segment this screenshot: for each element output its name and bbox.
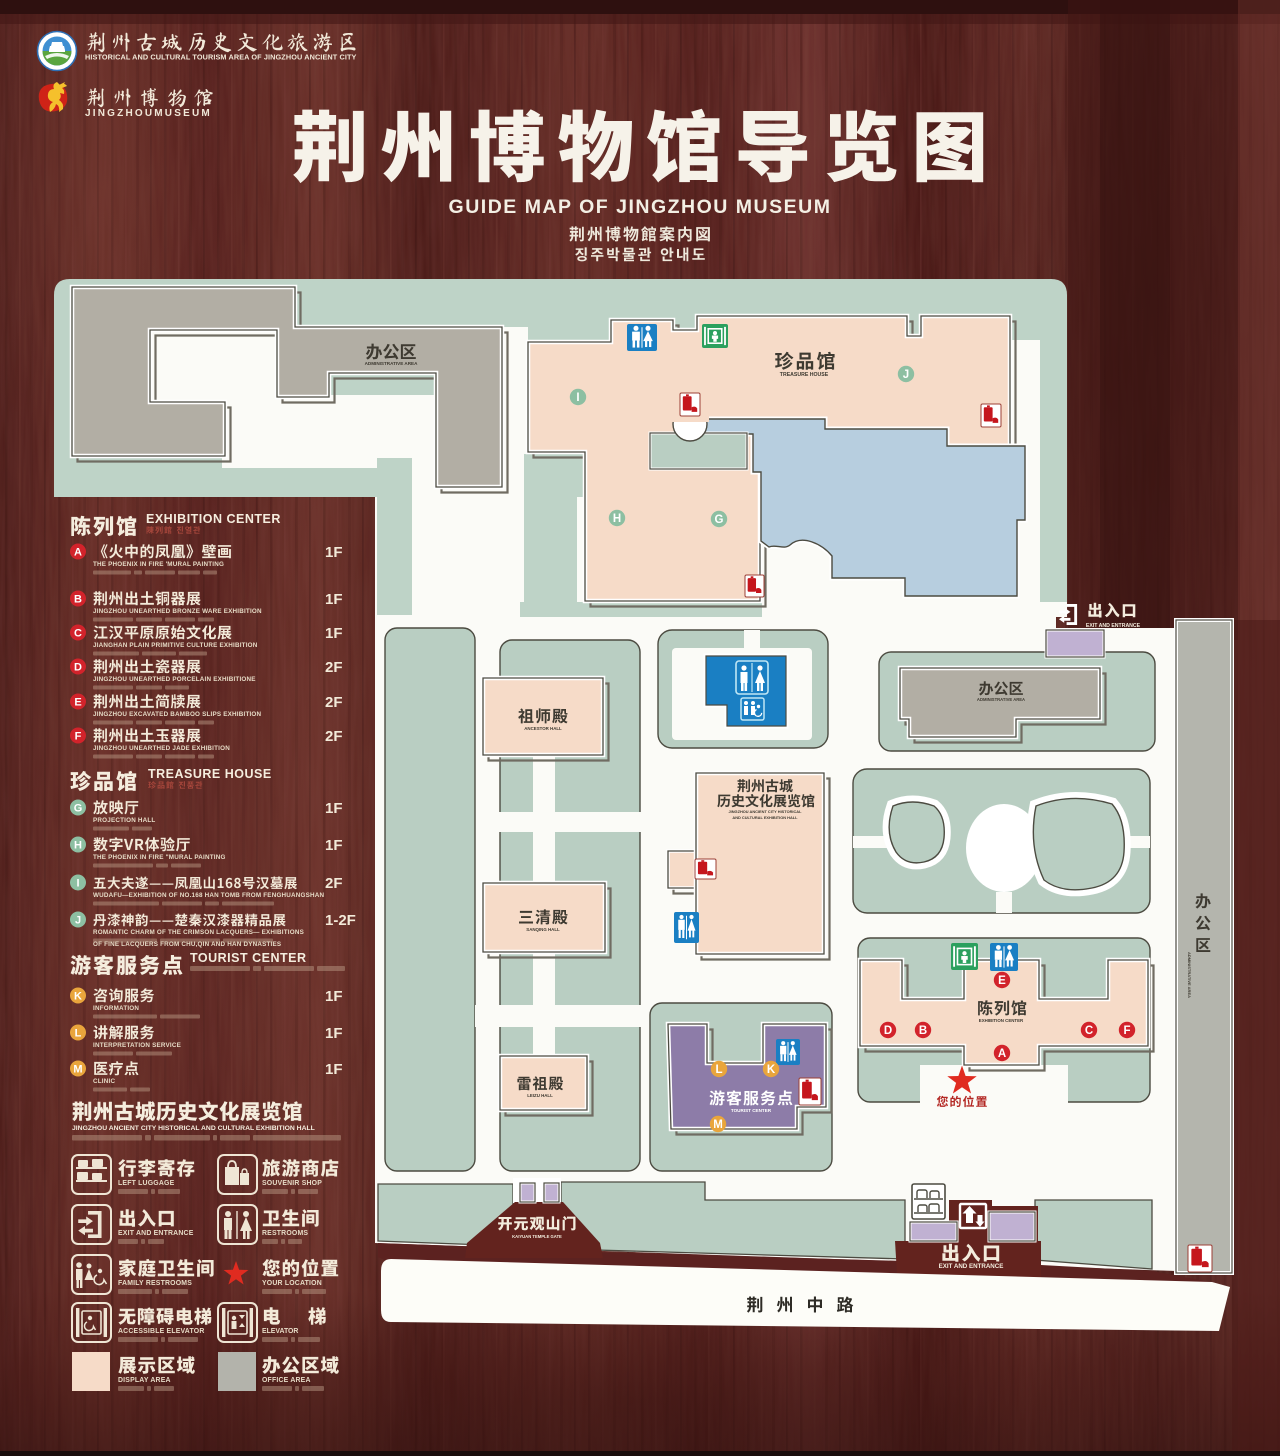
svg-text:1F: 1F xyxy=(325,591,343,608)
svg-text:EXIT AND ENTRANCE: EXIT AND ENTRANCE xyxy=(939,1263,1004,1270)
svg-text:B: B xyxy=(74,593,82,605)
svg-text:1F: 1F xyxy=(325,625,343,642)
svg-text:J: J xyxy=(903,369,909,381)
svg-text:JINGZHOU EXCAVATED BAMBOO SLIP: JINGZHOU EXCAVATED BAMBOO SLIPS EXHIBITI… xyxy=(93,711,262,718)
svg-text:F: F xyxy=(75,730,82,742)
svg-text:ADMINISTRATIVE AREA: ADMINISTRATIVE AREA xyxy=(365,361,419,366)
svg-text:M: M xyxy=(713,1119,723,1131)
svg-text:1F: 1F xyxy=(325,837,343,854)
svg-text:LEIZU HALL: LEIZU HALL xyxy=(527,1093,553,1098)
svg-text:1-2F: 1-2F xyxy=(325,912,356,929)
svg-text:ROMANTIC CHARM OF THE CRIMSON: ROMANTIC CHARM OF THE CRIMSON LACQUERS— … xyxy=(93,929,304,936)
svg-text:THE PHOENIX IN FIRE 'MURAL PAI: THE PHOENIX IN FIRE 'MURAL PAINTING xyxy=(93,561,224,568)
svg-text:ANCESTOR HALL: ANCESTOR HALL xyxy=(524,726,562,731)
svg-text:SOUVENIR SHOP: SOUVENIR SHOP xyxy=(262,1180,322,1187)
svg-text:KAIYUAN TEMPLE GATE: KAIYUAN TEMPLE GATE xyxy=(512,1234,562,1239)
svg-text:2F: 2F xyxy=(325,694,343,711)
svg-text:CLINIC: CLINIC xyxy=(93,1078,115,1085)
svg-text:DISPLAY AREA: DISPLAY AREA xyxy=(118,1377,171,1384)
svg-text:ACCESSIBLE ELEVATOR: ACCESSIBLE ELEVATOR xyxy=(118,1328,205,1335)
svg-text:OF FINE LACQUERS FROM CHU,QIN: OF FINE LACQUERS FROM CHU,QIN AND HAN DY… xyxy=(93,941,281,948)
svg-text:TOURIST CENTER: TOURIST CENTER xyxy=(190,951,307,965)
svg-text:JINGZHOU ANCIENT CITY HISTORIC: JINGZHOU ANCIENT CITY HISTORICAL xyxy=(729,809,803,814)
svg-text:L: L xyxy=(75,1027,82,1039)
svg-text:OFFICE AREA: OFFICE AREA xyxy=(262,1377,311,1384)
svg-text:H: H xyxy=(613,513,621,525)
svg-text:D: D xyxy=(884,1025,892,1037)
svg-text:C: C xyxy=(74,627,82,639)
svg-text:INTERPRETATION SERVICE: INTERPRETATION SERVICE xyxy=(93,1042,181,1049)
svg-text:A: A xyxy=(998,1048,1006,1060)
svg-text:JINGZHOU UNEARTHED JADE EXHIBI: JINGZHOU UNEARTHED JADE EXHIBITION xyxy=(93,745,230,752)
svg-text:LEFT LUGGAGE: LEFT LUGGAGE xyxy=(118,1180,175,1187)
svg-text:TREASURE HOUSE: TREASURE HOUSE xyxy=(780,372,829,378)
svg-text:C: C xyxy=(1085,1025,1093,1037)
svg-text:2F: 2F xyxy=(325,728,343,745)
svg-text:F: F xyxy=(1123,1025,1130,1037)
svg-text:EXIT AND ENTRANCE: EXIT AND ENTRANCE xyxy=(1086,623,1141,629)
svg-text:THE PHOENIX IN FIRE "MURAL PAI: THE PHOENIX IN FIRE "MURAL PAINTING xyxy=(93,854,226,861)
svg-text:1F: 1F xyxy=(325,1061,343,1078)
svg-text:B: B xyxy=(919,1025,927,1037)
svg-text:1F: 1F xyxy=(325,800,343,817)
svg-text:EXIT AND ENTRANCE: EXIT AND ENTRANCE xyxy=(118,1230,194,1237)
svg-text:YOUR LOCATION: YOUR LOCATION xyxy=(262,1280,322,1287)
svg-text:ADMINISTRATIVE AREA: ADMINISTRATIVE AREA xyxy=(977,697,1025,702)
svg-text:M: M xyxy=(73,1063,82,1075)
svg-text:INFORMATION: INFORMATION xyxy=(93,1005,139,1012)
svg-text:RESTROOMS: RESTROOMS xyxy=(262,1230,308,1237)
svg-text:ELEVATOR: ELEVATOR xyxy=(262,1328,298,1335)
svg-text:1F: 1F xyxy=(325,1025,343,1042)
svg-text:EXHIBITION CENTER: EXHIBITION CENTER xyxy=(146,512,281,526)
svg-text:H: H xyxy=(74,839,82,851)
svg-text:JINGZHOU UNEARTHED PORCELAIN E: JINGZHOU UNEARTHED PORCELAIN EXHIBITIONE xyxy=(93,676,256,683)
svg-text:HISTORICAL AND CULTURAL TOURIS: HISTORICAL AND CULTURAL TOURISM AREA OF … xyxy=(85,53,357,62)
svg-text:G: G xyxy=(74,802,83,814)
svg-text:TOURIST CENTER: TOURIST CENTER xyxy=(731,1108,772,1113)
svg-text:SANQING HALL: SANQING HALL xyxy=(526,927,560,932)
svg-text:I: I xyxy=(576,392,579,404)
svg-text:PROJECTION HALL: PROJECTION HALL xyxy=(93,817,155,824)
svg-text:AND CULTURAL EXHIBITION HALL: AND CULTURAL EXHIBITION HALL xyxy=(732,815,798,820)
svg-text:GUIDE MAP OF JINGZHOU MUSEUM: GUIDE MAP OF JINGZHOU MUSEUM xyxy=(449,196,832,218)
svg-text:G: G xyxy=(715,514,724,526)
svg-text:JINGZHOUMUSEUM: JINGZHOUMUSEUM xyxy=(85,108,212,119)
svg-text:2F: 2F xyxy=(325,659,343,676)
svg-text:2F: 2F xyxy=(325,875,343,892)
svg-text:1F: 1F xyxy=(325,988,343,1005)
svg-text:JINGZHOU UNEARTHED BRONZE WARE: JINGZHOU UNEARTHED BRONZE WARE EXHIBITIO… xyxy=(93,608,262,615)
svg-text:E: E xyxy=(998,975,1006,987)
svg-text:ADMINISTRATIVE AREA: ADMINISTRATIVE AREA xyxy=(1187,952,1192,998)
svg-text:D: D xyxy=(74,661,82,673)
svg-text:J: J xyxy=(75,914,81,926)
svg-text:TREASURE HOUSE: TREASURE HOUSE xyxy=(148,767,272,781)
svg-text:FAMILY RESTROOMS: FAMILY RESTROOMS xyxy=(118,1280,192,1287)
svg-text:A: A xyxy=(74,546,82,558)
svg-text:E: E xyxy=(74,696,81,708)
svg-text:I: I xyxy=(76,877,79,889)
svg-text:JIANGHAN PLAIN PRIMITIVE CULTU: JIANGHAN PLAIN PRIMITIVE CULTURE EXHIBIT… xyxy=(93,642,258,649)
svg-text:1F: 1F xyxy=(325,544,343,561)
svg-text:EXHIBITION CENTER: EXHIBITION CENTER xyxy=(979,1018,1024,1023)
svg-text:K: K xyxy=(74,990,82,1002)
svg-text:WUDAFU—EXHIBITION OF NO.168 HA: WUDAFU—EXHIBITION OF NO.168 HAN TOMB FRO… xyxy=(93,892,325,899)
svg-text:JINGZHOU ANCIENT CITY HISTORIC: JINGZHOU ANCIENT CITY HISTORICAL AND CUL… xyxy=(72,1125,315,1132)
svg-text:K: K xyxy=(767,1064,776,1076)
svg-text:L: L xyxy=(715,1064,722,1076)
